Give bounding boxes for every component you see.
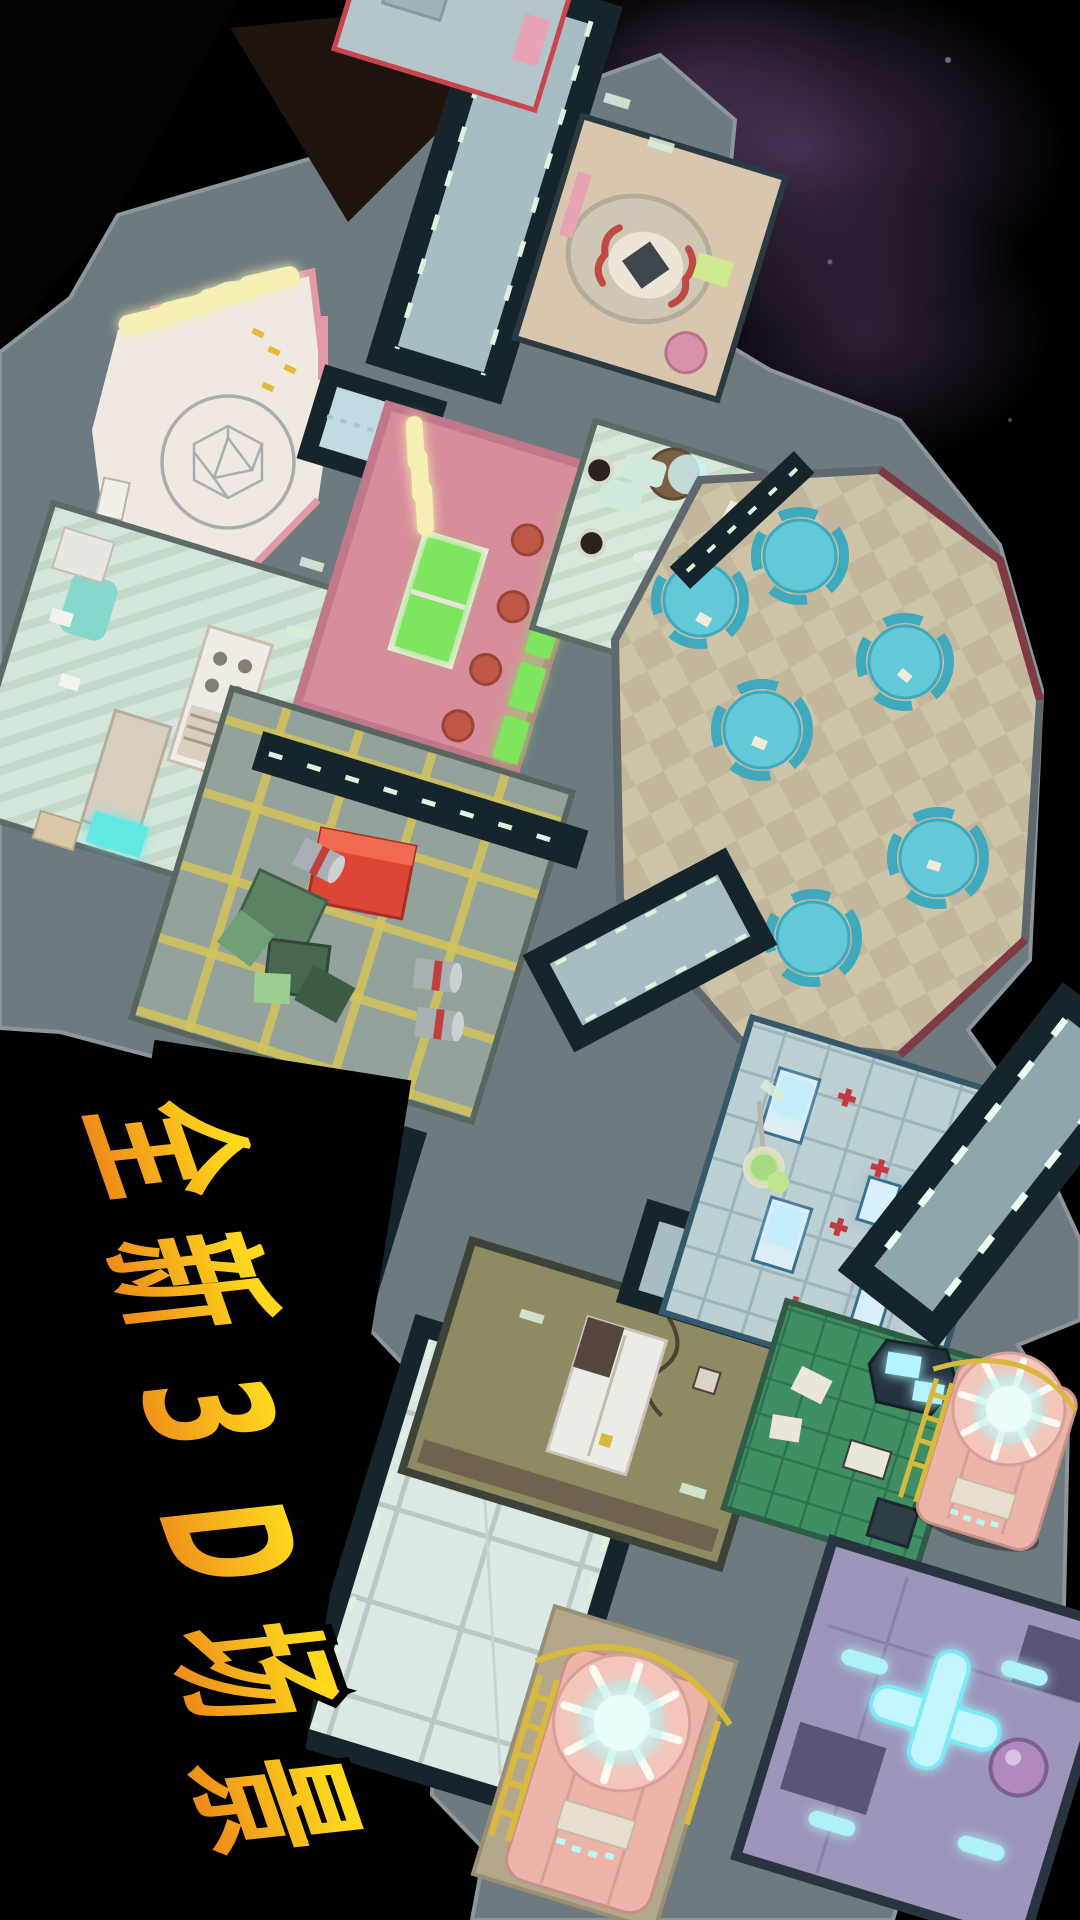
promo-screenshot: 全全 新新 33 DD 场场 景景 xyxy=(0,0,1080,1920)
banner-char-6: 景景 xyxy=(131,1726,412,1884)
